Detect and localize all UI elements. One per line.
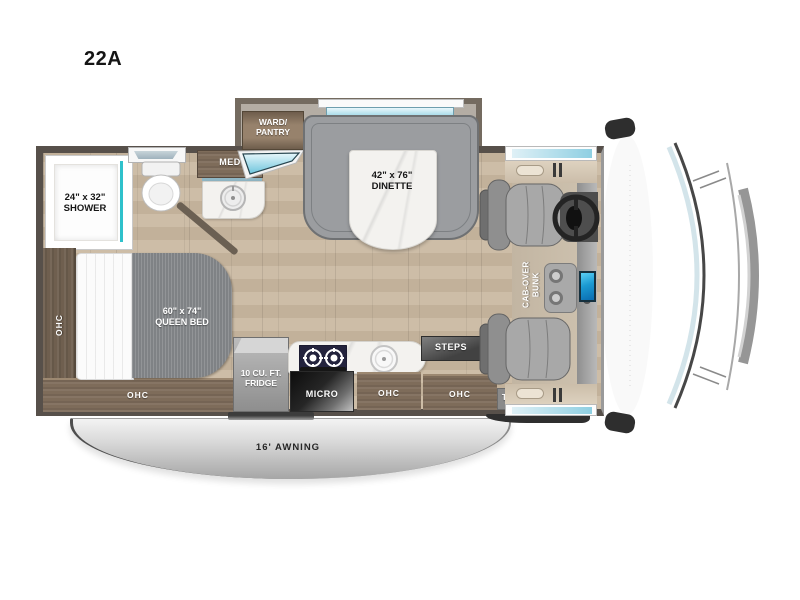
cab-door-top-handle [516,165,544,176]
dinette-label: 42" x 76" DINETTE [351,170,433,193]
side-mirror-top-icon [604,117,637,141]
exterior-step-bar [228,412,314,420]
dinette-table [349,150,437,250]
infotainment-screen [579,271,596,302]
cab-nose [597,105,792,450]
windshield-frame [675,143,704,408]
model-label: 22A [84,48,122,71]
galley-sink-drain [382,357,386,361]
cab-door-top-glass [512,149,592,158]
bed-name-label: QUEEN BED [132,317,232,328]
side-mirror-bottom-icon [603,411,636,435]
ward-pantry-line2: PANTRY [242,127,304,137]
ohc-bed-foot-label: OHC [43,390,233,400]
fridge-label: 10 CU. FT. FRIDGE [233,368,289,388]
galley-angled-window [236,147,306,181]
ohc-entry-label: OHC [423,389,497,399]
bath-window-shade [134,151,178,159]
toilet-tank [142,162,180,176]
cupholder-top [549,269,563,283]
passenger-seat [478,310,578,388]
fridge-line2: FRIDGE [233,378,289,388]
shower-name-label: SHOWER [47,203,123,214]
ward-pantry-line1: WARD/ [242,117,304,127]
galley-sink-icon [369,344,399,374]
ohc-kitchen-label: OHC [357,388,421,398]
cab-door-top-vents [553,163,563,177]
toilet-seat [149,183,173,205]
hood-shading [601,135,653,415]
cab-door-bottom-handle [516,388,544,399]
ward-pantry-label: WARD/ PANTRY [242,117,304,137]
hood-crease-top [693,171,726,188]
cupholder-bottom [549,291,563,305]
bed-pillows [76,253,134,380]
windshield-glass [669,147,697,404]
shower-label: 24" x 32" SHOWER [47,192,123,215]
dinette-size-label: 42" x 76" [351,170,433,181]
ohc-left-label: OHC [54,295,64,355]
cab-door-bottom-vents [553,388,563,402]
queen-bed-label: 60" x 74" QUEEN BED [132,306,232,328]
fridge-line1: 10 CU. FT. [233,368,289,378]
micro-label: MICRO [290,389,354,400]
bed-size-label: 60" x 74" [132,306,232,317]
sink-drain [231,196,235,200]
passenger-cushion [506,318,570,380]
steering-wheel-icon [550,192,602,244]
vanity-sink-icon [218,183,248,213]
steps-label: STEPS [421,342,481,353]
cab-door-bottom-glass [512,407,592,414]
fridge-top-panel [234,338,288,353]
front-fascia-line [727,163,739,390]
shower-size-label: 24" x 32" [47,192,123,203]
awning-label: 16' AWNING [70,442,506,453]
hood-crease-bottom [693,367,726,384]
floorplan-canvas: 22A 16' AWNING 24" x 32" SHOWER [0,0,800,600]
dinette-name-label: DINETTE [351,181,433,192]
